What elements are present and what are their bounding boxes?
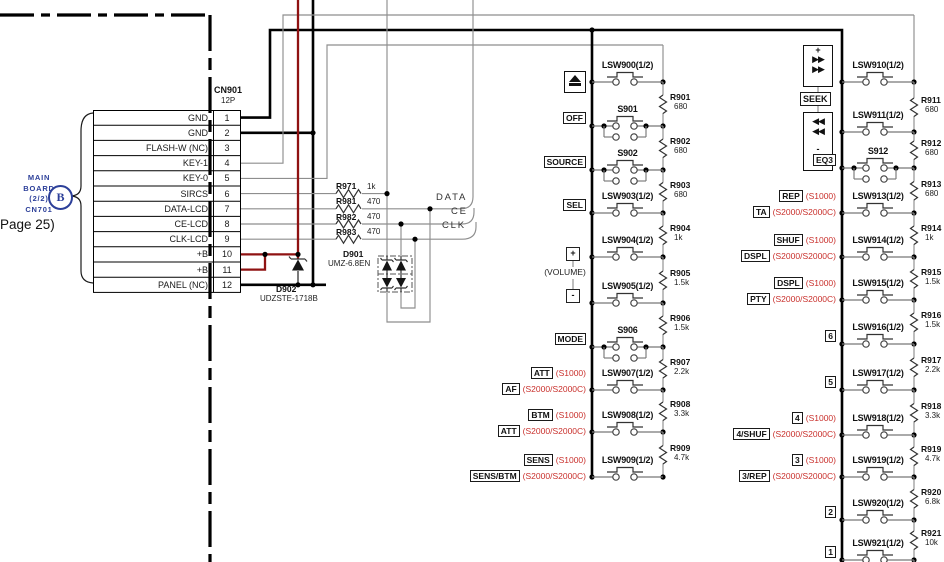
- resistor-name: R908: [670, 399, 690, 409]
- switch-contact: [863, 557, 869, 562]
- pin-name: GND: [93, 113, 208, 124]
- junction-dot: [310, 282, 315, 287]
- action-label: TA(S2000/S2000C): [753, 206, 836, 218]
- switch-actuator: [607, 248, 643, 253]
- switch-contact: [631, 178, 637, 184]
- switch-contact: [863, 387, 869, 393]
- action-label-box: 3/REP: [739, 470, 770, 482]
- switch-name: LSW913(1/2): [833, 191, 923, 202]
- resistor-value: 10k: [925, 538, 938, 548]
- model-variant-text: (S2000/S2000C): [773, 207, 836, 217]
- resistor-name: R903: [670, 180, 690, 190]
- action-label: EQ3: [813, 154, 836, 166]
- pin-name: KEY-1: [93, 158, 208, 169]
- pin-number: 2: [213, 128, 241, 139]
- switch-name: LSW911(1/2): [833, 110, 923, 121]
- switch-contact: [863, 474, 869, 480]
- switch-contact: [613, 429, 619, 435]
- d902-zener-triangle: [292, 260, 304, 271]
- action-label: 4(S1000): [792, 412, 836, 424]
- switch-name: LSW907(1/2): [583, 368, 673, 379]
- pin-number: 11: [213, 265, 241, 276]
- resistor-value: 680: [674, 146, 687, 156]
- d901-wires: [387, 209, 430, 322]
- model-variant-text: (S1000): [806, 191, 836, 201]
- resistor-name: R909: [670, 443, 690, 453]
- switch-contact: [613, 387, 619, 393]
- resistor-name: R914: [921, 223, 941, 233]
- switch-name: LSW917(1/2): [833, 368, 923, 379]
- resistor-value: 1.5k: [925, 320, 940, 330]
- action-label-box: DSPL: [741, 250, 770, 262]
- action-label-box: 4: [792, 412, 803, 424]
- switch-contact: [631, 134, 637, 140]
- action-label: BTM(S1000): [528, 409, 586, 421]
- resistor-name: R917: [921, 355, 941, 365]
- switch-name: LSW900(1/2): [583, 60, 673, 71]
- seek-up-icon: + ▶▶ ▶▶: [803, 45, 833, 87]
- zener-up-icon: [382, 261, 392, 271]
- switch-actuator: [857, 73, 893, 78]
- switch-actuator: [607, 117, 643, 122]
- seek-label: SEEK: [800, 92, 831, 106]
- signal-label-clk: CLK: [442, 220, 466, 231]
- action-label: DSPL(S1000): [774, 277, 836, 289]
- resistor-name: R907: [670, 357, 690, 367]
- resistor-value: 680: [925, 148, 938, 158]
- model-variant-text: (S2000/S2000C): [773, 294, 836, 304]
- resistor-name: R919: [921, 444, 941, 454]
- d901-part: UMZ-6.8EN: [328, 259, 370, 269]
- connector-brace: [70, 113, 93, 283]
- switch-name: S912: [833, 146, 923, 157]
- page-ref: Page 25): [0, 217, 55, 233]
- model-variant-text: (S1000): [806, 235, 836, 245]
- switch-contact: [863, 210, 869, 216]
- model-variant-text: (S2000/S2000C): [523, 426, 586, 436]
- model-variant-text: (S2000/S2000C): [523, 384, 586, 394]
- switch-contact: [881, 297, 887, 303]
- volume-label: (VOLUME): [520, 267, 610, 278]
- resistor-value: 1k: [674, 233, 682, 243]
- resistor-name: R904: [670, 223, 690, 233]
- seek-plus-sign: +: [804, 46, 832, 55]
- resistor-name: R920: [921, 487, 941, 497]
- model-variant-text: (S2000/S2000C): [773, 429, 836, 439]
- switch-contact: [881, 387, 887, 393]
- switch-contact: [631, 254, 637, 260]
- resistor-name: R902: [670, 136, 690, 146]
- signal-label-ce: CE: [451, 206, 468, 217]
- model-variant-text: (S1000): [556, 410, 586, 420]
- junction-dot: [295, 252, 300, 257]
- switch-contact: [881, 165, 887, 171]
- switch-contact: [881, 432, 887, 438]
- action-label: OFF: [563, 112, 586, 124]
- switch-contact: [613, 300, 619, 306]
- eject-icon: [564, 71, 586, 93]
- action-label: ATT(S2000/S2000C): [498, 425, 586, 437]
- main-board-note-line: MAIN: [10, 173, 68, 184]
- switch-contact: [631, 474, 637, 480]
- resistor-name: R911: [921, 95, 941, 105]
- resistor-value: 680: [925, 189, 938, 199]
- switch-contact: [631, 210, 637, 216]
- action-label-box: 1: [825, 546, 836, 558]
- switch-contact: [863, 297, 869, 303]
- resistor-value: 3.3k: [925, 411, 940, 421]
- switch-name: LSW916(1/2): [833, 322, 923, 333]
- inline-resistor-value: 470: [367, 227, 380, 237]
- resistor-name: R916: [921, 310, 941, 320]
- model-variant-text: (S2000/S2000C): [773, 251, 836, 261]
- d902-part: UDZSTE-1718B: [260, 294, 318, 304]
- pin-number: 10: [213, 249, 241, 260]
- switch-contact: [631, 429, 637, 435]
- switch-contact: [881, 254, 887, 260]
- junction-dot: [427, 206, 432, 211]
- clk-wire: [241, 222, 476, 239]
- action-label-box: TA: [753, 206, 770, 218]
- action-label: 1: [825, 546, 836, 558]
- resistor-value: 1.5k: [674, 323, 689, 333]
- action-label-box: OFF: [563, 112, 586, 124]
- action-label-box: ATT: [498, 425, 520, 437]
- junction-dot: [398, 221, 403, 226]
- switch-contact: [631, 300, 637, 306]
- switch-name: LSW921(1/2): [833, 538, 923, 549]
- switch-actuator: [607, 468, 643, 473]
- pin-name: SIRCS: [93, 189, 208, 200]
- switch-actuator: [857, 123, 893, 128]
- switch-contact: [863, 129, 869, 135]
- switch-contact: [881, 474, 887, 480]
- model-variant-text: (S1000): [556, 455, 586, 465]
- pin-name: CLK-LCD: [93, 234, 208, 245]
- switch-contact: [631, 387, 637, 393]
- switch-actuator: [857, 468, 893, 473]
- action-label: AF(S2000/S2000C): [502, 383, 586, 395]
- pin-number: 7: [213, 204, 241, 215]
- switch-contact: [613, 254, 619, 260]
- fast-forward-icon: ▶▶: [804, 55, 832, 65]
- zener-up-icon: [396, 261, 406, 271]
- seek-minus-sign: -: [804, 145, 832, 154]
- switch-contact: [881, 176, 887, 182]
- action-label-box: 5: [825, 376, 836, 388]
- switch-actuator: [607, 338, 643, 343]
- action-label: 3(S1000): [792, 454, 836, 466]
- action-label-box: 4/SHUF: [733, 428, 769, 440]
- switch-contact: [881, 210, 887, 216]
- pin-name: PANEL (NC): [93, 280, 208, 291]
- signal-label-data: DATA: [436, 192, 467, 203]
- resistor-name: R912: [921, 138, 941, 148]
- fast-forward-icon: ▶▶: [804, 65, 832, 75]
- switch-contact: [631, 344, 637, 350]
- junction-dot: [412, 237, 417, 242]
- switch-name: LSW919(1/2): [833, 455, 923, 466]
- switch-actuator: [857, 426, 893, 431]
- model-variant-text: (S1000): [806, 455, 836, 465]
- action-label: 3/REP(S2000/S2000C): [739, 470, 836, 482]
- resistor-name: R921: [921, 528, 941, 538]
- resistor-name: R913: [921, 179, 941, 189]
- action-label-box: 3: [792, 454, 803, 466]
- switch-contact: [613, 123, 619, 129]
- action-label-box: AF: [502, 383, 519, 395]
- switch-name: LSW920(1/2): [833, 498, 923, 509]
- switch-contact: [881, 517, 887, 523]
- junction-dot: [384, 191, 389, 196]
- action-label: SEL: [563, 199, 586, 211]
- resistor-value: 6.8k: [925, 497, 940, 507]
- switch-name: S901: [583, 104, 673, 115]
- eject-bar: [569, 83, 581, 86]
- gnd-pin2-wire: [241, 0, 313, 285]
- switch-contact: [613, 167, 619, 173]
- action-label: SENS(S1000): [524, 454, 586, 466]
- action-label: 5: [825, 376, 836, 388]
- pin-name: FLASH-W (NC): [93, 143, 208, 154]
- inline-resistor-name: R982: [336, 212, 356, 222]
- model-variant-text: (S1000): [806, 278, 836, 288]
- switch-name: LSW908(1/2): [583, 410, 673, 421]
- resistor-name: R918: [921, 401, 941, 411]
- switch-actuator: [607, 73, 643, 78]
- switch-actuator: [607, 161, 643, 166]
- model-variant-text: (S1000): [806, 413, 836, 423]
- schematic-page: CN901 12P MAIN BOARD (2/2) CN701 B Page …: [0, 0, 944, 562]
- pin-number: 3: [213, 143, 241, 154]
- pin-name: CE-LCD: [93, 219, 208, 230]
- switch-contact: [613, 178, 619, 184]
- pin-name: KEY-0: [93, 173, 208, 184]
- action-label: SHUF(S1000): [774, 234, 836, 246]
- model-variant-text: (S2000/S2000C): [523, 471, 586, 481]
- action-label-box: REP: [779, 190, 802, 202]
- resistor-name: R901: [670, 92, 690, 102]
- pin-number: 12: [213, 280, 241, 291]
- switch-contact: [613, 344, 619, 350]
- switch-name: LSW918(1/2): [833, 413, 923, 424]
- switch-actuator: [857, 511, 893, 516]
- action-label-box: DSPL: [774, 277, 803, 289]
- switch-actuator: [607, 294, 643, 299]
- switch-contact: [881, 129, 887, 135]
- pin-name: DATA-LCD: [93, 204, 208, 215]
- action-label-box: SENS: [524, 454, 553, 466]
- switch-name: LSW910(1/2): [833, 60, 923, 71]
- resistor-value: 680: [925, 105, 938, 115]
- d902-label: D902: [276, 284, 296, 294]
- board-ref-circle: B: [48, 185, 73, 210]
- switch-contact: [613, 355, 619, 361]
- action-label: MODE: [555, 333, 587, 345]
- action-label-box: SEL: [563, 199, 586, 211]
- junction-dot: [262, 252, 267, 257]
- model-variant-text: (S2000/S2000C): [773, 471, 836, 481]
- action-label: 2: [825, 506, 836, 518]
- connector-subtitle: 12P: [221, 96, 235, 105]
- action-label-box: SOURCE: [544, 156, 586, 168]
- resistor-value: 1.5k: [925, 277, 940, 287]
- action-label: DSPL(S2000/S2000C): [741, 250, 836, 262]
- switch-contact: [863, 341, 869, 347]
- inline-resistor-value: 470: [367, 212, 380, 222]
- action-label: PTY(S2000/S2000C): [747, 293, 836, 305]
- pin-number: 8: [213, 219, 241, 230]
- switch-contact: [863, 254, 869, 260]
- switch-contact: [631, 355, 637, 361]
- action-label-box: EQ3: [813, 154, 836, 166]
- pin-number: 6: [213, 189, 241, 200]
- switch-contact: [863, 432, 869, 438]
- resistor-name: R905: [670, 268, 690, 278]
- eject-triangle: [569, 75, 581, 82]
- inline-resistor-value: 1k: [367, 182, 375, 192]
- switch-actuator: [607, 381, 643, 386]
- rewind-icon: ◀◀: [804, 127, 832, 137]
- inline-resistor-name: R971: [336, 181, 356, 191]
- resistor-value: 680: [674, 102, 687, 112]
- action-label: 6: [825, 330, 836, 342]
- switch-contact: [613, 79, 619, 85]
- resistor-name: R906: [670, 313, 690, 323]
- switch-name: LSW905(1/2): [583, 281, 673, 292]
- action-label-box: ATT: [531, 367, 553, 379]
- action-label-box: 2: [825, 506, 836, 518]
- inline-resistor-name: R983: [336, 227, 356, 237]
- switch-actuator: [607, 204, 643, 209]
- action-label-box: 6: [825, 330, 836, 342]
- pin-name: GND: [93, 128, 208, 139]
- pin-number: 4: [213, 158, 241, 169]
- switch-actuator: [607, 423, 643, 428]
- switch-contact: [631, 167, 637, 173]
- switch-actuator: [857, 381, 893, 386]
- inline-resistor-value: 470: [367, 197, 380, 207]
- switch-contact: [613, 474, 619, 480]
- switch-name: S902: [583, 148, 673, 159]
- action-label: REP(S1000): [779, 190, 836, 202]
- switch-actuator: [857, 335, 893, 340]
- switch-contact: [881, 341, 887, 347]
- volume-minus-icon: -: [566, 289, 580, 303]
- pin-number: 9: [213, 234, 241, 245]
- action-label: 4/SHUF(S2000/S2000C): [733, 428, 836, 440]
- switch-contact: [863, 517, 869, 523]
- d901-label: D901: [343, 249, 363, 259]
- switch-name: LSW904(1/2): [583, 235, 673, 246]
- rewind-icon: ◀◀: [804, 117, 832, 127]
- switch-name: LSW914(1/2): [833, 235, 923, 246]
- zener-down-icon: [382, 278, 392, 288]
- switch-name: LSW915(1/2): [833, 278, 923, 289]
- pin-number: 5: [213, 173, 241, 184]
- action-label-box: SHUF: [774, 234, 803, 246]
- switch-contact: [863, 79, 869, 85]
- resistor-value: 1k: [925, 233, 933, 243]
- action-label: SENS/BTM(S2000/S2000C): [470, 470, 586, 482]
- pin-number: 1: [213, 113, 241, 124]
- model-variant-text: (S1000): [556, 368, 586, 378]
- junction-dot: [310, 130, 315, 135]
- action-label: SOURCE: [544, 156, 586, 168]
- action-label: ATT(S1000): [531, 367, 586, 379]
- pin-name: +B: [93, 265, 208, 276]
- resistor-name: R915: [921, 267, 941, 277]
- switch-actuator: [857, 291, 893, 296]
- switch-name: S906: [583, 325, 673, 336]
- inline-resistor-name: R981: [336, 196, 356, 206]
- connector-title: CN901: [214, 85, 242, 95]
- resistor-value: 1.5k: [674, 278, 689, 288]
- zener-down-icon: [396, 278, 406, 288]
- pin-name: +B: [93, 249, 208, 260]
- resistor-value: 2.2k: [925, 365, 940, 375]
- resistor-value: 4.7k: [674, 453, 689, 463]
- switch-contact: [613, 210, 619, 216]
- volume-plus-icon: +: [566, 247, 580, 261]
- resistor-value: 2.2k: [674, 367, 689, 377]
- switch-contact: [863, 176, 869, 182]
- switch-name: LSW903(1/2): [583, 191, 673, 202]
- switch-contact: [613, 134, 619, 140]
- switch-contact: [881, 557, 887, 562]
- resistor-value: 680: [674, 190, 687, 200]
- switch-actuator: [857, 159, 893, 164]
- action-label-box: BTM: [528, 409, 552, 421]
- switch-actuator: [857, 204, 893, 209]
- switch-contact: [631, 79, 637, 85]
- switch-actuator: [857, 248, 893, 253]
- switch-contact: [631, 123, 637, 129]
- resistor-value: 4.7k: [925, 454, 940, 464]
- resistor-value: 3.3k: [674, 409, 689, 419]
- switch-contact: [863, 165, 869, 171]
- switch-name: LSW909(1/2): [583, 455, 673, 466]
- action-label-box: MODE: [555, 333, 587, 345]
- action-label-box: SENS/BTM: [470, 470, 520, 482]
- data-wire: [241, 0, 473, 209]
- switch-actuator: [857, 551, 893, 556]
- action-label-box: PTY: [747, 293, 770, 305]
- switch-contact: [881, 79, 887, 85]
